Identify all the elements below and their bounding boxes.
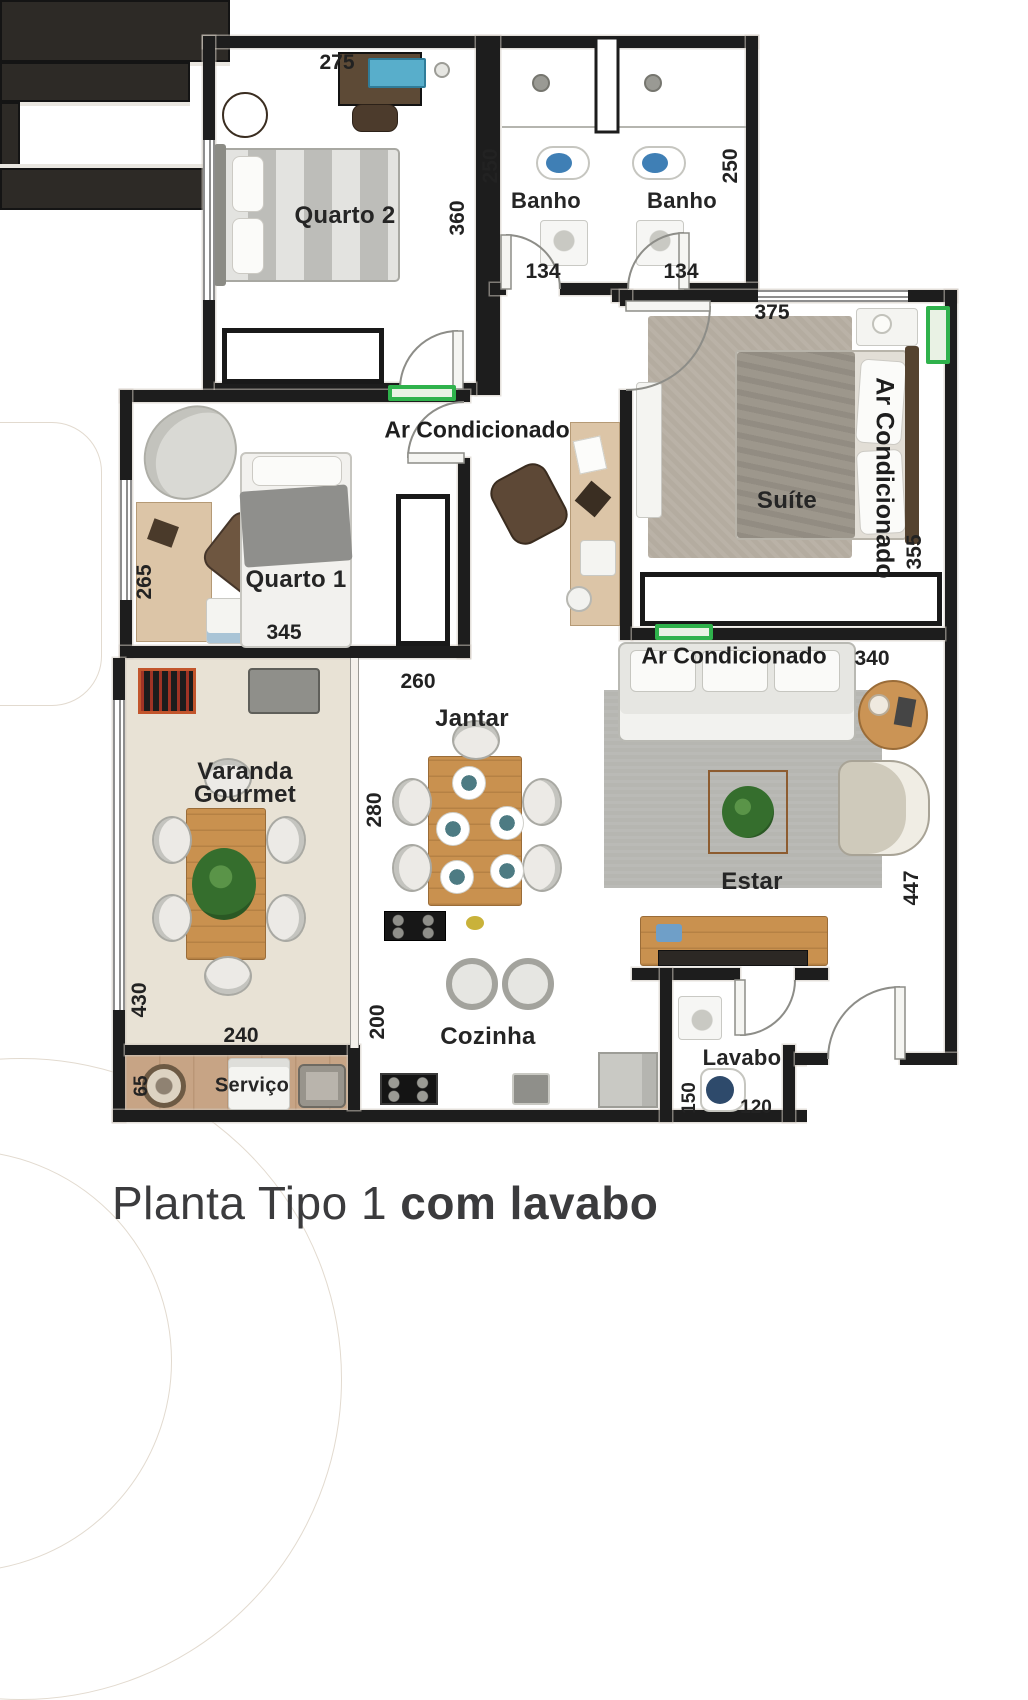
varanda-chair-right-1	[266, 816, 306, 864]
dim-quarto2-width: 275	[319, 51, 354, 75]
varanda-chair-bottom	[204, 956, 252, 996]
decor-rounded-rect	[0, 422, 102, 706]
wall-estar-lavabo-1	[632, 968, 740, 980]
page-title-bold: com lavabo	[387, 1177, 658, 1229]
kitchen-stool-2	[502, 958, 554, 1010]
quarto2-pillow-bottom	[232, 218, 264, 274]
lavabo-toilet-lid	[706, 1076, 734, 1104]
jantar-plate-4	[440, 860, 474, 894]
dim-banho-left-height: 250	[479, 148, 503, 183]
ac-label-hall: Ar Condicionado	[384, 417, 569, 444]
jantar-chair-left-2	[392, 844, 432, 892]
wall-lavabo-left	[660, 968, 672, 1122]
jantar-plate-5	[490, 854, 524, 888]
room-label-jantar: Jantar	[435, 705, 509, 733]
banho-right-glass-line	[618, 126, 746, 128]
quarto1-pillow	[252, 456, 342, 486]
dim-lavabo-width: 120	[740, 1097, 772, 1119]
kitchen-bar-counter-return	[0, 102, 20, 168]
quarto1-wardrobe	[396, 494, 450, 646]
glass-varanda-divider	[350, 658, 359, 1048]
varanda-grill	[138, 668, 196, 714]
quarto2-tv	[368, 58, 426, 88]
suite-wardrobe	[640, 572, 942, 626]
window-quarto1	[120, 480, 132, 600]
dim-quarto2-height: 360	[446, 200, 470, 235]
ac-label-suite: Ar Condicionado	[870, 377, 899, 578]
dim-quarto1-width: 345	[266, 621, 301, 645]
dim-servico-height: 65	[131, 1075, 153, 1096]
wall-suite-left-bottom	[620, 390, 632, 640]
dim-estar-width: 340	[854, 647, 889, 671]
kitchen-stool-1	[446, 958, 498, 1010]
dim-suite-height: 355	[903, 534, 927, 569]
wall-suite-left-top	[620, 290, 632, 306]
kitchen-fridge	[598, 1052, 658, 1108]
varanda-chair-right-2	[266, 894, 306, 942]
dim-estar-height: 447	[900, 870, 924, 905]
mask-bottom-right	[807, 1065, 1028, 1145]
dim-banho-right-width: 134	[663, 260, 698, 284]
kitchen-bottom-counter	[0, 168, 232, 210]
banho-left-shower-icon	[532, 74, 550, 92]
quarto2-pillow-top	[232, 156, 264, 212]
wall-servico-right	[348, 1045, 360, 1110]
servico-tank	[298, 1064, 346, 1108]
quarto2-round-rug	[222, 92, 268, 138]
floor-plan-canvas: Quarto 2 275 360 Banho 250 134 Banho 250…	[0, 0, 1028, 1280]
room-label-quarto1: Quarto 1	[245, 566, 346, 594]
dim-banho-right-height: 250	[719, 148, 743, 183]
ac-unit-estar	[655, 624, 713, 640]
wall-banho-right	[746, 36, 758, 300]
jantar-plate-2	[436, 812, 470, 846]
suite-dresser	[636, 382, 662, 518]
estar-console-decor	[656, 924, 682, 942]
room-label-cozinha: Cozinha	[440, 1023, 535, 1051]
room-label-varanda-line2: Gourmet	[194, 781, 296, 809]
hall-bin	[566, 586, 592, 612]
ac-unit-hall	[388, 385, 456, 401]
quarto1-bed-blanket	[239, 484, 352, 567]
quarto2-lamp	[434, 62, 450, 78]
page-title: Planta Tipo 1 com lavabo	[112, 1176, 658, 1230]
dim-quarto1-height: 265	[133, 564, 157, 599]
jantar-chair-left-1	[392, 778, 432, 826]
jantar-chair-right-1	[522, 778, 562, 826]
banho-left-toilet-water	[546, 153, 572, 173]
room-label-banho-left: Banho	[511, 188, 581, 214]
wall-lavabo-right	[783, 1045, 795, 1122]
jantar-plate-1	[452, 766, 486, 800]
wall-banho-bottom-1	[490, 283, 506, 295]
kitchen-stove	[380, 1073, 438, 1105]
quarto2-bed-headboard	[214, 144, 226, 286]
ac-label-estar: Ar Condicionado	[641, 643, 826, 670]
banho-right-shower-icon	[644, 74, 662, 92]
wall-quarto2-banho-divider	[476, 36, 500, 395]
varanda-counter-sink	[248, 668, 320, 714]
kitchen-bar-cooktop	[384, 911, 446, 941]
room-label-banho-right: Banho	[647, 188, 717, 214]
wall-entry-bottom-2	[900, 1053, 957, 1065]
dim-lavabo-height: 150	[679, 1082, 701, 1114]
dim-suite-width: 375	[754, 301, 789, 325]
wall-estar-lavabo-2	[795, 968, 828, 980]
lavabo-sink	[678, 996, 722, 1040]
wall-entry-bottom-1	[795, 1053, 828, 1065]
dim-varanda-width: 240	[223, 1024, 258, 1048]
dim-banho-left-width: 134	[525, 260, 560, 284]
jantar-chair-right-2	[522, 844, 562, 892]
room-label-suite: Suíte	[757, 487, 817, 515]
suite-bed-headboard	[905, 346, 919, 544]
jantar-plate-3	[490, 806, 524, 840]
estar-tv	[658, 950, 808, 966]
estar-side-table-cup	[868, 694, 890, 716]
suite-nightstand-lamp	[872, 314, 892, 334]
wall-right	[945, 290, 957, 1065]
banho-right-toilet-water	[642, 153, 668, 173]
varanda-chair-left-2	[152, 894, 192, 942]
varanda-grill-counter	[0, 0, 230, 62]
kitchen-bar-counter	[0, 62, 190, 102]
room-label-quarto2: Quarto 2	[294, 202, 395, 230]
page-title-regular: Planta Tipo 1	[112, 1177, 387, 1229]
room-label-estar: Estar	[721, 868, 783, 896]
kitchen-sink	[512, 1073, 550, 1105]
dim-cozinha-counter: 320	[470, 1077, 505, 1101]
quarto2-desk-chair	[352, 104, 398, 132]
dim-jantar-width: 280	[363, 792, 387, 827]
kitchen-bar-fruit	[466, 916, 484, 930]
room-label-lavabo: Lavabo	[703, 1045, 782, 1071]
varanda-chair-left-1	[152, 816, 192, 864]
room-label-servico: Serviço	[215, 1075, 289, 1098]
banho-left-glass-line	[502, 126, 596, 128]
hall-printer	[580, 540, 616, 576]
wall-quarto1-right	[458, 458, 470, 658]
dim-cozinha-height: 200	[366, 1004, 390, 1039]
estar-armchair	[838, 760, 930, 856]
estar-side-table	[858, 680, 928, 750]
estar-coffee-table-plant	[722, 786, 774, 838]
window-quarto2	[203, 140, 215, 300]
dim-hall-counter: 260	[400, 670, 435, 694]
quarto2-wardrobe	[222, 328, 384, 384]
dim-varanda-height: 430	[128, 982, 152, 1017]
wall-bottom	[113, 1110, 807, 1122]
ac-unit-suite	[926, 306, 950, 364]
varanda-table-plant	[192, 848, 256, 920]
window-varanda	[113, 700, 125, 1010]
